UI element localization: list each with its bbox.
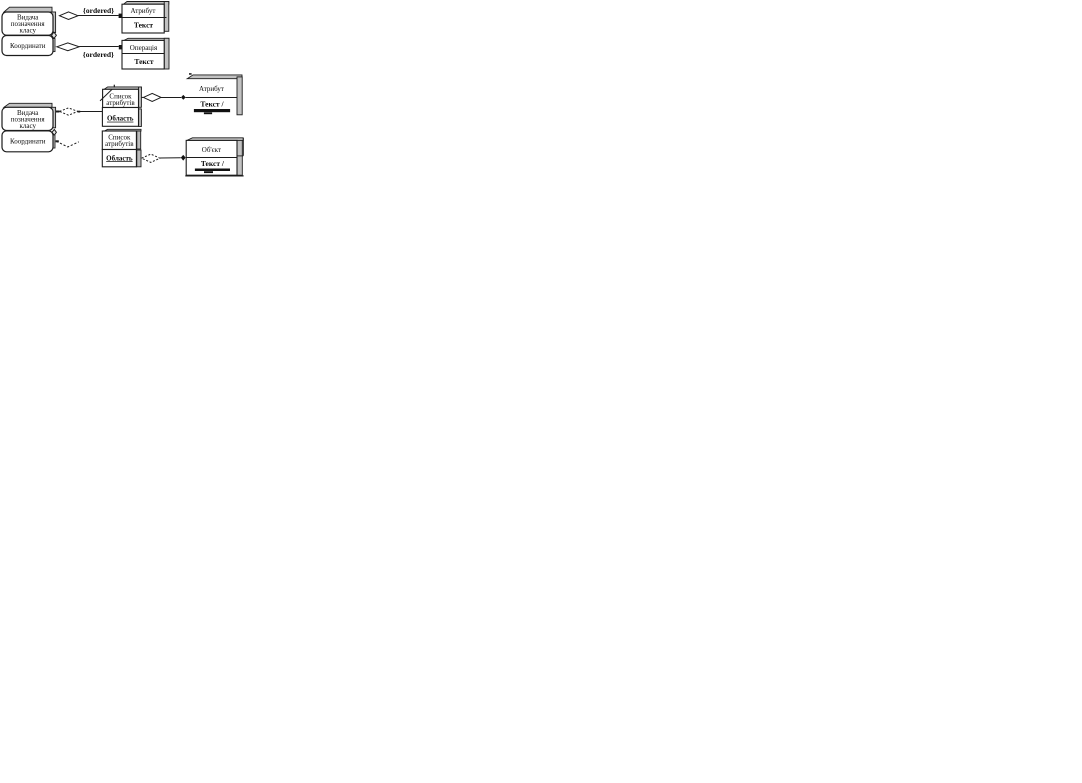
svg-text:Координати: Координати: [10, 42, 46, 50]
svg-text:Об'єкт: Об'єкт: [202, 146, 221, 154]
svg-text:класу: класу: [19, 122, 36, 130]
svg-text:Координати: Координати: [10, 137, 46, 145]
svg-text:атрибутів: атрибутів: [106, 99, 135, 107]
svg-text:атрибутів: атрибутів: [105, 140, 134, 148]
svg-text:Область: Область: [106, 154, 133, 162]
svg-text:Атрибут: Атрибут: [199, 85, 224, 93]
svg-text:Текст /: Текст /: [201, 159, 225, 168]
svg-text:{ordered}: {ordered}: [83, 50, 114, 59]
svg-text:Текст: Текст: [134, 21, 154, 30]
svg-text:{ordered}: {ordered}: [83, 6, 114, 15]
svg-text:класу: класу: [19, 26, 36, 34]
svg-text:Область: Область: [107, 115, 134, 123]
svg-text:Текст: Текст: [134, 57, 154, 66]
svg-text:Операція: Операція: [130, 44, 158, 52]
svg-text:Текст /: Текст /: [200, 99, 224, 108]
svg-text:Атрибут: Атрибут: [131, 7, 156, 15]
